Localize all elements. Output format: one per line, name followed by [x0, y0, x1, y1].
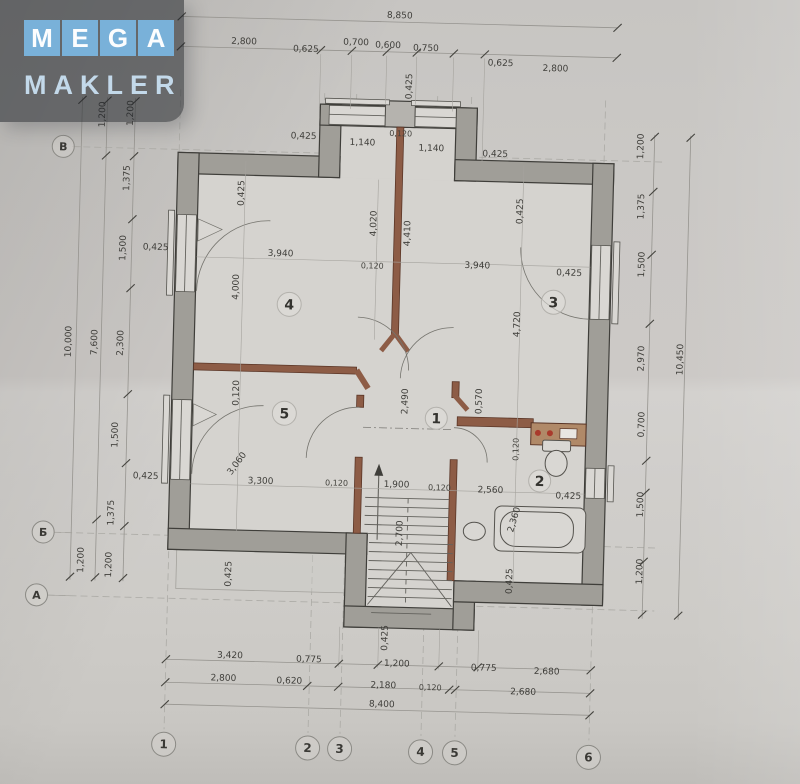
dim-label: 0,425: [380, 625, 391, 651]
photo-of-floor-plan: В Б А 1 2 3 4 5 6 4 3 5 1 2 8,850 2,800 …: [0, 0, 800, 784]
dim-label: 1,900: [384, 480, 410, 491]
window-top-left: [325, 98, 390, 126]
dim-label: 0,600: [375, 40, 401, 51]
dim-label: 1,140: [418, 144, 444, 155]
dim-label: 4,000: [231, 274, 242, 300]
dim-label: 1,500: [110, 422, 121, 448]
dim-label: 0,120: [232, 380, 243, 406]
dim-label: 1,375: [106, 500, 117, 526]
dim-label: 0,700: [637, 411, 648, 437]
room-number-2: 2: [535, 474, 545, 490]
dim-label: 0,425: [133, 471, 159, 482]
dim-label: 4,020: [369, 210, 380, 236]
dim-label: 2,680: [510, 687, 536, 698]
dim-label: 8,400: [369, 700, 395, 711]
dim-label: 1,200: [635, 558, 646, 584]
dim-label: 0,425: [143, 242, 169, 253]
axis-col-label-5: 5: [450, 746, 459, 760]
axis-col-label-4: 4: [416, 745, 425, 759]
wall-hall-left: [353, 457, 362, 533]
dim-label: 0,425: [555, 491, 581, 502]
dim-label: 10,450: [675, 343, 686, 375]
dim-label: 1,375: [122, 165, 133, 191]
mega-makler-logo: M E G A: [24, 20, 174, 56]
wall-bath-top: [457, 417, 533, 428]
dim-label: 3,940: [268, 249, 294, 260]
dim-label: 1,200: [76, 547, 87, 573]
logo-tile: G: [100, 20, 136, 56]
dim-label: 3,420: [217, 651, 243, 662]
axis-col-label-6: 6: [584, 750, 593, 764]
wall-top-right: [455, 160, 614, 185]
window-right-lower: [585, 465, 614, 502]
room-number-5: 5: [279, 406, 289, 422]
dim-label: 0,570: [474, 388, 485, 414]
dim-label: 2,680: [534, 667, 560, 678]
dim-label: 0,425: [291, 131, 317, 142]
dim-label: 1,375: [637, 194, 648, 220]
axis-row-label-b: Б: [39, 526, 48, 539]
dim-label: 2,800: [542, 64, 568, 75]
watermark-overlay: M E G A MAKLER: [0, 0, 184, 122]
dim-label: 2,490: [400, 388, 411, 414]
dim-label: 0,625: [488, 58, 514, 69]
dim-label: 0,775: [471, 663, 497, 674]
dim-label: 0,425: [515, 198, 526, 224]
room-number-3: 3: [548, 295, 558, 311]
dim-label: 2,180: [370, 681, 396, 692]
axis-col-label-2: 2: [303, 741, 312, 755]
axis-col-label-1: 1: [159, 737, 168, 751]
dim-label: 0,120: [325, 478, 348, 488]
dim-label: 1,200: [384, 659, 410, 670]
dim-label: 4,410: [403, 220, 414, 246]
dim-label: 1,500: [636, 491, 647, 517]
wall-bath-bottom: [453, 581, 602, 606]
dim-label: 0,750: [413, 43, 439, 54]
dim-label: 4,720: [512, 311, 523, 337]
logo-tile: E: [62, 20, 98, 56]
dim-label: 1,500: [637, 251, 648, 277]
wall-hall-left-stub: [357, 395, 364, 407]
room-number-4: 4: [284, 297, 294, 313]
logo-tile: A: [138, 20, 174, 56]
dim-label: 0,425: [556, 268, 582, 279]
dim-label: 7,600: [90, 329, 101, 355]
dim-label: 0,120: [361, 261, 384, 271]
dim-label: 0,120: [419, 683, 442, 693]
dim-label: 0,620: [276, 676, 302, 687]
dim-label: 2,800: [210, 673, 236, 684]
dim-label: 2,800: [231, 37, 257, 48]
dim-label: 2,700: [395, 520, 406, 546]
dim-label: 1,200: [104, 551, 115, 577]
dim-label: 0,120: [511, 438, 521, 461]
dim-label: 0,425: [505, 568, 516, 594]
logo-subtitle: MAKLER: [24, 70, 182, 101]
axis-row-label-a: А: [32, 589, 41, 602]
sink: [463, 522, 485, 541]
dim-label: 0,425: [405, 73, 416, 99]
dim-label: 0,120: [428, 483, 451, 493]
dim-label: 0,425: [224, 561, 235, 587]
dim-label: 3,300: [248, 476, 274, 487]
dim-label: 0,120: [389, 129, 412, 139]
dim-label: 10,000: [64, 325, 75, 357]
dim-label: 1,500: [118, 235, 129, 261]
wall-top-left: [178, 152, 340, 177]
dim-label: 2,970: [637, 345, 648, 371]
dim-label: 8,850: [387, 11, 413, 22]
dim-label: 3,940: [464, 261, 490, 272]
room-number-1: 1: [431, 411, 441, 427]
dim-label: 0,775: [296, 655, 322, 666]
dim-label: 0,425: [482, 149, 508, 160]
dim-label: 0,625: [293, 44, 319, 55]
logo-tile: M: [24, 20, 60, 56]
window-top-right: [411, 100, 461, 127]
dim-label: 1,200: [636, 133, 647, 159]
dim-label: 0,700: [343, 38, 369, 49]
axis-col-label-3: 3: [335, 742, 344, 756]
dim-label: 2,300: [116, 330, 127, 356]
dim-label: 1,140: [349, 138, 375, 149]
dim-label: 2,560: [477, 485, 503, 496]
axis-row-label-v: В: [59, 140, 68, 153]
terrace-outline: [176, 549, 346, 592]
wall-bottom-left: [168, 528, 367, 554]
dim-label: 0,425: [237, 180, 248, 206]
